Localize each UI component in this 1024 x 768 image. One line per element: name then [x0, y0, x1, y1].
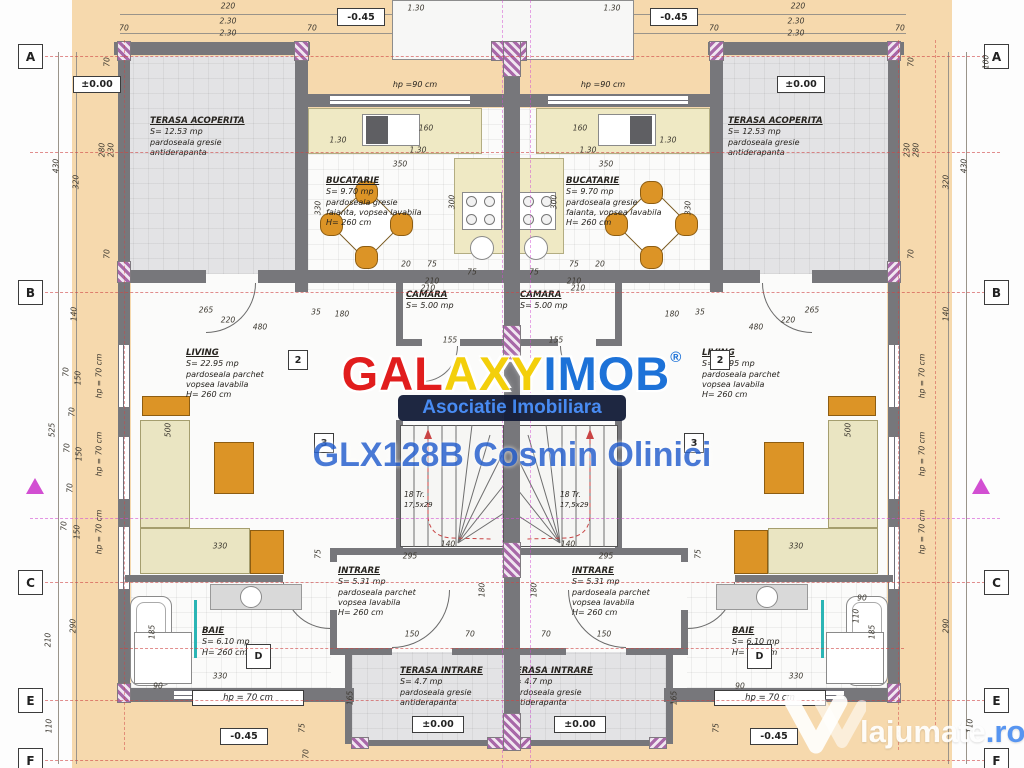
- oven: [630, 116, 652, 144]
- dimension-label: 330: [789, 672, 804, 681]
- dimension-label: 110: [45, 719, 54, 734]
- dimension-label: 75: [427, 260, 437, 269]
- terrace-edge: [352, 740, 504, 746]
- dimension-label: 140: [942, 307, 951, 322]
- burner-icon: [484, 196, 495, 207]
- dimension-label: 70: [907, 249, 916, 259]
- room-note: pardoseala gresie: [400, 688, 508, 698]
- sill-label: hp = 70 cm: [192, 690, 304, 706]
- dimension-label: 290: [942, 619, 951, 634]
- armchair: [250, 530, 284, 574]
- chair: [640, 246, 663, 269]
- room-note: H= 260 cm: [732, 648, 816, 658]
- dimension-label: 185: [868, 625, 877, 640]
- room-note: vopsea lavabila: [572, 598, 680, 608]
- room-note: H= 260 cm: [202, 648, 286, 658]
- dimension-label: 320: [72, 175, 81, 190]
- room-name: BUCATARIE: [566, 176, 692, 187]
- dimension-label: 1.30: [410, 146, 427, 155]
- dimension-label: 70: [119, 24, 129, 33]
- burner-icon: [541, 214, 552, 225]
- elevation-marker: -0.45: [337, 8, 385, 26]
- dimension-label: 165: [346, 691, 355, 706]
- room-note: faianta, vopsea lavabila: [566, 208, 692, 218]
- dimension-label: 430: [960, 159, 969, 174]
- dimension-label: 35: [695, 308, 705, 317]
- dimension-label: 230: [903, 143, 912, 158]
- wall: [114, 42, 310, 55]
- room-note: pardoseala gresie: [728, 138, 868, 148]
- burner-icon: [484, 214, 495, 225]
- wall: [710, 42, 723, 292]
- dimension-label: 220: [791, 2, 806, 11]
- room-area: S= 4.7 mp: [510, 677, 618, 687]
- dimension-label: 70: [541, 630, 551, 639]
- dimension-label: 70: [103, 249, 112, 259]
- dimension-label: 210: [421, 284, 436, 293]
- elevation-marker: ±0.00: [554, 716, 606, 733]
- dimension-label: 180: [665, 310, 680, 319]
- room-note: pardoseala gresie: [150, 138, 290, 148]
- room-name: TERASA INTRARE: [510, 666, 618, 677]
- room-note: antiderapanta: [728, 148, 868, 158]
- armchair: [734, 530, 768, 574]
- dimension-label: 140: [441, 540, 456, 549]
- dimension-label: 220: [221, 316, 236, 325]
- room-note: H= 260 cm: [572, 608, 680, 618]
- dimension-label: 90: [735, 682, 745, 691]
- floor-plan-page: TERASA ACOPERITA S= 12.53 mp pardoseala …: [0, 0, 1024, 768]
- site-name: lajumate.ro: [860, 714, 1024, 750]
- dimension-label: 100: [982, 55, 991, 70]
- brand-part: IMOB: [544, 347, 671, 400]
- dimension-label: 155: [443, 336, 458, 345]
- dimension-label: 180: [478, 583, 487, 598]
- grid-bubble-c-left: C: [18, 570, 43, 595]
- agent-code-watermark: GLX128B Cosmin Olinici: [0, 436, 1024, 475]
- dimension-label: 70: [465, 630, 475, 639]
- dimension-label: 480: [749, 323, 764, 332]
- room-note: pardoseala parchet: [572, 588, 680, 598]
- room-label-bath: BAIE S= 6.10 mp H= 260 cm: [732, 626, 816, 658]
- grid-bubble-c-right: C: [984, 570, 1009, 595]
- room-note: H= 260 cm: [338, 608, 446, 618]
- grid-bubble-a-left: A: [18, 44, 43, 69]
- axis-line-b: [30, 292, 1000, 293]
- galaxyimob-watermark: GALAXYIMOB®: [0, 346, 1024, 401]
- burner-icon: [523, 214, 534, 225]
- wash-basin: [240, 586, 262, 608]
- wall: [626, 648, 688, 655]
- wall: [510, 270, 760, 283]
- dimension-label: 150: [73, 525, 82, 540]
- dimension-label: 210: [44, 633, 53, 648]
- elevation-marker: -0.45: [650, 8, 698, 26]
- terrace-edge: [514, 740, 666, 746]
- room-label-entry: INTRARE S= 5.31 mp pardoseala parchet vo…: [338, 566, 446, 619]
- pier: [710, 42, 723, 60]
- section-arrow-icon: [26, 478, 44, 494]
- dimension-label: 70: [68, 407, 77, 417]
- dimension-label: 290: [69, 619, 78, 634]
- stair-count-label: 18 Tr.: [560, 490, 614, 499]
- dimension-label: 75: [694, 549, 703, 559]
- wall: [460, 339, 508, 346]
- shower: [134, 632, 192, 684]
- dimension-label: 1.30: [330, 136, 347, 145]
- dimension-label: 70: [307, 24, 317, 33]
- dimension-label: 2.30: [788, 17, 805, 26]
- room-name: TERASA ACOPERITA: [150, 116, 290, 127]
- room-note: pardoseala gresie: [510, 688, 618, 698]
- dimension-label: 20: [401, 260, 411, 269]
- room-note: pardoseala gresie: [566, 198, 692, 208]
- room-label-entry-terrace: TERASA INTRARE S= 4.7 mp pardoseala gres…: [400, 666, 508, 708]
- room-area: S= 5.00 mp: [520, 301, 612, 311]
- wall: [330, 548, 337, 562]
- dimension-label: 70: [103, 57, 112, 67]
- grid-bubble-e-left: E: [18, 688, 43, 713]
- elevation-marker: -0.45: [220, 728, 268, 745]
- section-line: [30, 518, 1000, 519]
- wall: [118, 270, 206, 283]
- dimension-label: 75: [569, 260, 579, 269]
- dimension-label: 1.30: [604, 4, 621, 13]
- accent-line: [821, 600, 824, 658]
- room-name: BUCATARIE: [326, 176, 452, 187]
- dimension-label: 185: [148, 625, 157, 640]
- lajumate-logo-icon: [782, 694, 866, 760]
- dimension-label: 2.30: [220, 17, 237, 26]
- pier: [352, 738, 368, 748]
- dimension-label: 330: [314, 201, 323, 216]
- room-label-pantry: CAMARA S= 5.00 mp: [520, 290, 612, 312]
- dimension-label: 70: [66, 483, 75, 493]
- stair-riser-label: 17,5x29: [560, 501, 614, 509]
- dimension-label: 210: [571, 284, 586, 293]
- dimension-label: 90: [153, 682, 163, 691]
- dimension-label: 280: [98, 143, 107, 158]
- room-name: TERASA ACOPERITA: [728, 116, 868, 127]
- dimension-label: 75: [529, 268, 539, 277]
- dimension-label: 70: [302, 749, 311, 759]
- room-area: S= 6.10 mp: [732, 637, 816, 647]
- dimension-label: 230: [107, 143, 116, 158]
- dimension-label: 165: [670, 691, 679, 706]
- pier: [650, 738, 666, 748]
- dimension-label: 430: [52, 159, 61, 174]
- dimension-label: 150: [597, 630, 612, 639]
- dimension-label: 180: [530, 583, 539, 598]
- elevation-marker: ±0.00: [73, 76, 121, 93]
- dimension-label: 110: [852, 609, 861, 624]
- axis-line-d: [120, 648, 904, 649]
- dimension-label: 220: [781, 316, 796, 325]
- dimension-label: 140: [70, 307, 79, 322]
- burner-icon: [466, 214, 477, 225]
- dimension-label: 265: [805, 306, 820, 315]
- axis-line: [30, 152, 1000, 153]
- brand-subtitle-band: Asociatie Imobiliara: [398, 395, 626, 421]
- sink-round: [470, 236, 494, 260]
- pier: [504, 42, 520, 76]
- axis-line-a: [30, 56, 1000, 57]
- wall: [330, 548, 508, 555]
- lajumate-watermark: lajumate.ro: [782, 688, 1024, 768]
- room-note: pardoseala parchet: [338, 588, 446, 598]
- dimension-label: 160: [573, 124, 588, 133]
- dimension-label: 180: [335, 310, 350, 319]
- pier: [504, 714, 520, 750]
- dimension-label: 300: [448, 195, 457, 210]
- room-name: INTRARE: [338, 566, 446, 577]
- room-label-kitchen: BUCATARIE S= 9.70 mp pardoseala gresie f…: [326, 176, 452, 229]
- sill-label: hp =90 cm: [548, 80, 658, 89]
- room-name: TERASA INTRARE: [400, 666, 508, 677]
- wall: [812, 270, 900, 283]
- dimension-label: 1.30: [660, 136, 677, 145]
- sofa-corner: [768, 528, 878, 574]
- terrace-floor: [118, 56, 302, 274]
- site-tld: .ro: [986, 714, 1024, 749]
- grid-bubble-b-right: B: [984, 280, 1009, 305]
- dimension-label: 140: [561, 540, 576, 549]
- dimension-label: 280: [912, 143, 921, 158]
- section-arrow-icon: [972, 478, 990, 494]
- room-name: BAIE: [732, 626, 816, 637]
- dimension-label: 320: [942, 175, 951, 190]
- dimension-label: 265: [199, 306, 214, 315]
- room-area: S= 12.53 mp: [728, 127, 868, 137]
- dimension-label: 2.30: [220, 29, 237, 38]
- chair: [355, 246, 378, 269]
- dimension-label: 75: [298, 723, 307, 733]
- dimension-label: 2.30: [788, 29, 805, 38]
- shower: [826, 632, 884, 684]
- dimension-label: 20: [595, 260, 605, 269]
- dimension-label: 160: [419, 124, 434, 133]
- window: [330, 96, 470, 105]
- dimension-label: 350: [393, 160, 408, 169]
- room-label-kitchen: BUCATARIE S= 9.70 mp pardoseala gresie f…: [566, 176, 692, 229]
- dimension-label: 70: [709, 24, 719, 33]
- dimension-label: 90: [857, 594, 867, 603]
- dimension-label: 70: [895, 24, 905, 33]
- room-label-bath: BAIE S= 6.10 mp H= 260 cm: [202, 626, 286, 658]
- wall: [295, 42, 308, 292]
- window: [548, 96, 688, 105]
- dimension-label: 155: [549, 336, 564, 345]
- dimension-label: 150: [405, 630, 420, 639]
- dimension-label: 70: [907, 57, 916, 67]
- room-note: vopsea lavabila: [338, 598, 446, 608]
- elevation-marker: ±0.00: [412, 716, 464, 733]
- room-note: H= 260 cm: [326, 218, 452, 228]
- dimension-label: 70: [60, 521, 69, 531]
- site-name-text: lajumate: [860, 714, 986, 749]
- dimension-label: 350: [599, 160, 614, 169]
- stair-count-label: 18 Tr.: [404, 490, 458, 499]
- accent-line: [194, 600, 197, 658]
- elevation-marker: ±0.00: [777, 76, 825, 93]
- dimension-label: 75: [712, 723, 721, 733]
- brand-part: AXY: [444, 347, 544, 400]
- axis-line-c: [30, 582, 1000, 583]
- room-note: pardoseala gresie: [326, 198, 452, 208]
- wall: [396, 339, 422, 346]
- brand-part: GAL: [342, 347, 444, 400]
- dimension-label: 330: [684, 201, 693, 216]
- wall: [330, 648, 392, 655]
- room-note: faianta, vopsea lavabila: [326, 208, 452, 218]
- wall: [452, 648, 508, 655]
- dimension-label: 1.30: [580, 146, 597, 155]
- dimension-label: 295: [403, 552, 418, 561]
- grid-bubble-f-left: F: [18, 748, 43, 768]
- dimension-label: 300: [550, 195, 559, 210]
- room-area: S= 12.53 mp: [150, 127, 290, 137]
- room-name: BAIE: [202, 626, 286, 637]
- dimension-label: 480: [253, 323, 268, 332]
- wall: [596, 339, 622, 346]
- sink-round: [524, 236, 548, 260]
- dimension-label: hp = 70 cm: [95, 510, 104, 554]
- wall: [708, 42, 904, 55]
- stair-riser-label: 17,5x29: [404, 501, 458, 509]
- dimension-label: 330: [789, 542, 804, 551]
- wash-basin: [756, 586, 778, 608]
- room-note: antiderapanta: [150, 148, 290, 158]
- burner-icon: [523, 196, 534, 207]
- room-area: S= 6.10 mp: [202, 637, 286, 647]
- dimension-label: 330: [213, 542, 228, 551]
- dimension-label: 75: [467, 268, 477, 277]
- dimension-label: 35: [311, 308, 321, 317]
- dimension-label: 220: [221, 2, 236, 11]
- sofa-corner: [140, 528, 250, 574]
- room-note: H= 260 cm: [566, 218, 692, 228]
- dimension-label: hp = 70 cm: [918, 510, 927, 554]
- room-area: S= 9.70 mp: [326, 187, 452, 197]
- room-label-entry: INTRARE S= 5.31 mp pardoseala parchet vo…: [572, 566, 680, 619]
- room-area: S= 9.70 mp: [566, 187, 692, 197]
- dimension-label: 75: [314, 549, 323, 559]
- registered-mark-icon: ®: [670, 349, 682, 366]
- dimension-label: 1.30: [408, 4, 425, 13]
- room-name: INTRARE: [572, 566, 680, 577]
- pier: [295, 42, 308, 60]
- room-label-pantry: CAMARA S= 5.00 mp: [406, 290, 498, 312]
- sill-label: hp =90 cm: [360, 80, 470, 89]
- dimension-label: 330: [213, 672, 228, 681]
- oven: [366, 116, 388, 144]
- wall: [735, 575, 893, 582]
- wall: [125, 575, 283, 582]
- grid-bubble-b-left: B: [18, 280, 43, 305]
- wall: [681, 548, 688, 562]
- brand-subtitle: Asociatie Imobiliara: [422, 397, 602, 419]
- dimension-label: 295: [599, 552, 614, 561]
- burner-icon: [466, 196, 477, 207]
- room-area: S= 5.00 mp: [406, 301, 498, 311]
- room-label-entry-terrace: TERASA INTRARE S= 4.7 mp pardoseala gres…: [510, 666, 618, 708]
- dimension-line: [948, 52, 949, 764]
- pier: [504, 543, 520, 577]
- room-area: S= 4.7 mp: [400, 677, 508, 687]
